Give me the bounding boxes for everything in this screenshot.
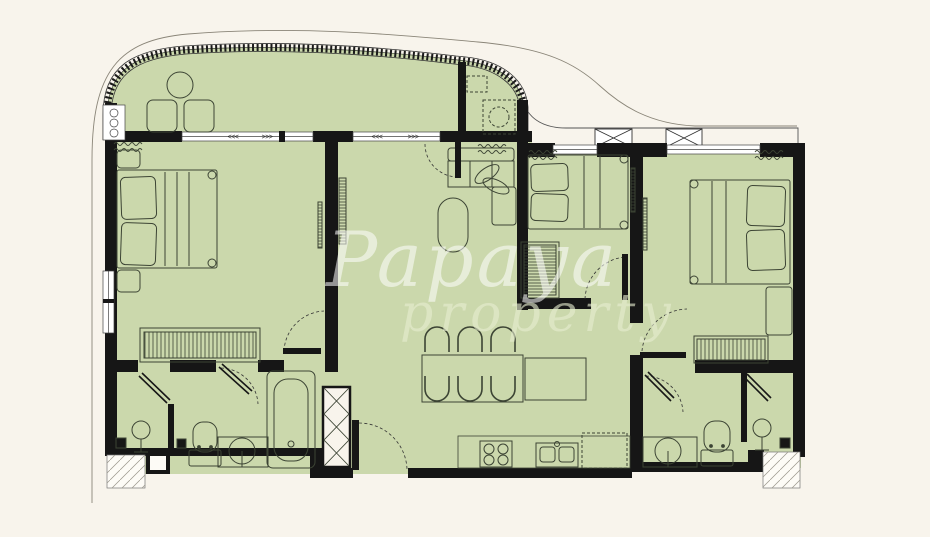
- door-leaf-entrance: [352, 420, 359, 470]
- wall-bottom-2: [408, 468, 632, 478]
- service-shaft-center: [323, 387, 350, 467]
- wardrobe-bed1-hangers: [144, 332, 256, 358]
- door-leaf-bed1: [283, 348, 321, 354]
- wall-bed3-bottom: [695, 360, 805, 373]
- toilet-2-btn1: [710, 445, 713, 448]
- entry-recess-right-hatch: [763, 452, 800, 488]
- slider-mark-2: >>>: [262, 134, 273, 141]
- entry-recess-left-hatch: [107, 455, 145, 488]
- slider-mark-3: <<<: [372, 134, 383, 141]
- wall-bath1-divider: [168, 404, 174, 450]
- floor-drain-1: [116, 438, 126, 448]
- wall-bath2-divider: [741, 372, 747, 442]
- floor-drain-2: [177, 439, 186, 448]
- door-leaf-bed3: [640, 352, 686, 358]
- toilet-1-btn2: [210, 446, 213, 449]
- toilet-1-btn1: [198, 446, 201, 449]
- shaft-box-left: [103, 105, 125, 140]
- floor-plan-page: <<< >>> <<< >>>: [0, 0, 930, 537]
- wall-shaft-right: [748, 450, 764, 472]
- wardrobe-bed3-hangers: [697, 339, 765, 360]
- watermark-line2: property: [400, 284, 677, 344]
- wall-kitchen-bath2: [630, 373, 643, 472]
- door-leaf-balcony: [455, 142, 461, 178]
- service-shaft-left-core: [150, 456, 166, 470]
- floor-plan-canvas: <<< >>> <<< >>>: [0, 0, 930, 537]
- wall-right: [793, 143, 805, 457]
- slider-mark-1: <<<: [228, 134, 239, 141]
- glass-mullion-1: [279, 131, 285, 142]
- wall-balcony-partition: [458, 62, 466, 134]
- wall-balcony-right: [517, 100, 528, 145]
- glass-mullion-2: [103, 299, 114, 303]
- wall-bed1-bottom-1: [105, 360, 138, 372]
- tv-bed2: [631, 168, 635, 212]
- tv-bed3: [643, 198, 647, 250]
- slider-mark-4: >>>: [408, 134, 419, 141]
- wall-bed1-bottom-3: [258, 360, 284, 372]
- tv-bed1: [318, 202, 322, 248]
- floor-drain-3: [780, 438, 790, 448]
- toilet-2-btn2: [722, 445, 725, 448]
- wall-bottom-1: [322, 468, 353, 478]
